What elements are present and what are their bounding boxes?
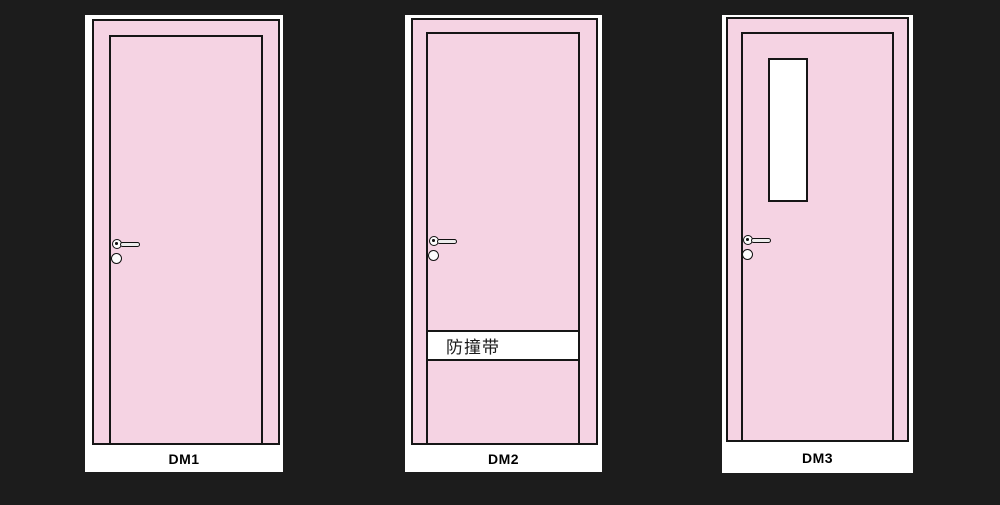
door-label-text: DM1 — [168, 451, 199, 467]
crash-rail-label: 防撞带 — [446, 333, 500, 358]
door-unit-dm3: DM3 — [722, 15, 913, 473]
door-unit-dm2: 防撞带 DM2 — [405, 15, 602, 472]
door-unit-dm1: DM1 — [85, 15, 283, 472]
door-label-text: DM3 — [802, 450, 833, 466]
handle-spindle-dot — [432, 239, 435, 242]
lock-cylinder-icon — [428, 250, 439, 261]
vision-panel-window — [768, 58, 808, 202]
handle-spindle-dot — [115, 242, 118, 245]
handle-spindle-dot — [746, 238, 749, 241]
crash-rail-band: 防撞带 — [426, 330, 580, 361]
door-label-dm3: DM3 — [722, 442, 913, 473]
door-label-dm2: DM2 — [405, 445, 602, 472]
door-label-text: DM2 — [488, 451, 519, 467]
door-label-dm1: DM1 — [85, 445, 283, 472]
door-handle-icon — [429, 236, 461, 264]
lock-cylinder-icon — [742, 249, 753, 260]
handle-lever-icon — [120, 242, 140, 247]
door-handle-icon — [743, 235, 775, 263]
handle-lever-icon — [437, 239, 457, 244]
door-handle-icon — [112, 239, 144, 267]
handle-lever-icon — [751, 238, 771, 243]
lock-cylinder-icon — [111, 253, 122, 264]
door-diagram-canvas: DM1 防撞带 DM2 D — [0, 0, 1000, 505]
